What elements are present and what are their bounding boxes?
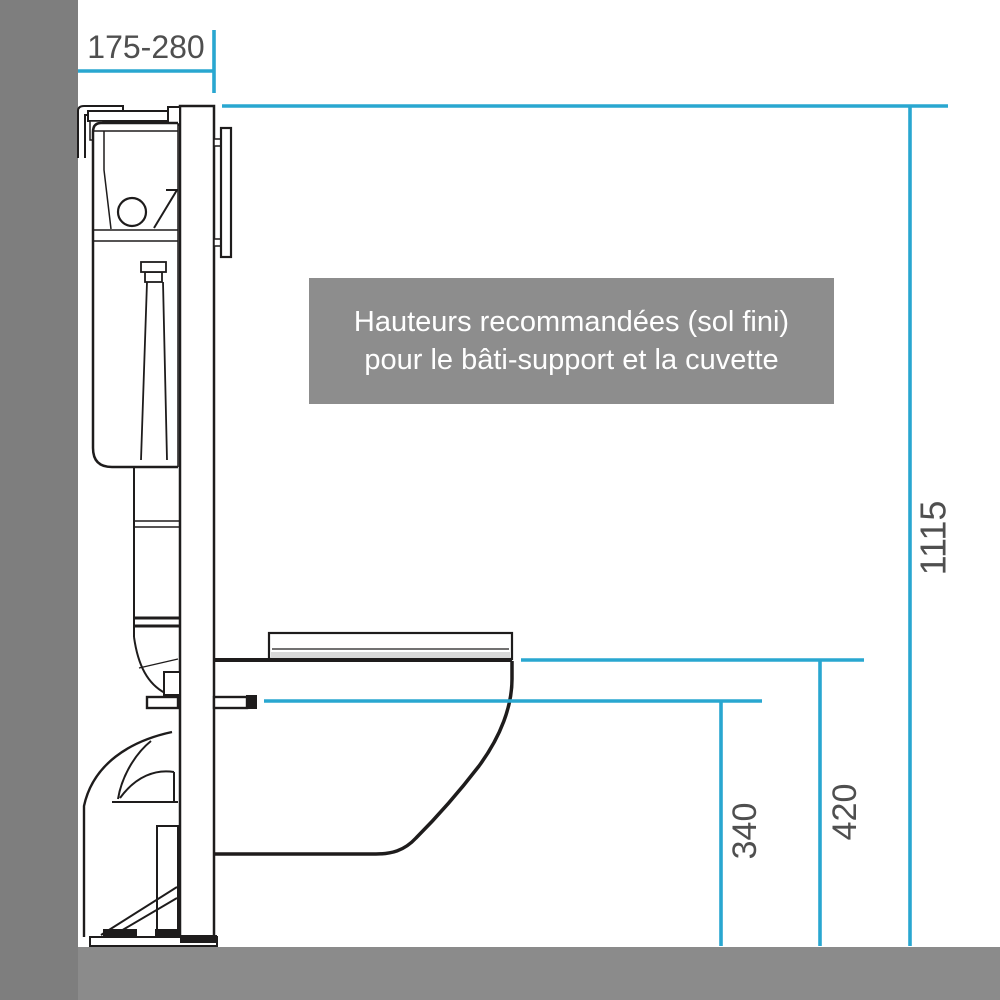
banner-line-1: Hauteurs recommandées (sol fini) (354, 303, 789, 341)
waste-socket-arc (120, 771, 174, 802)
banner-line-2: pour le bâti-support et la cuvette (364, 341, 778, 379)
plate-shadow (180, 935, 217, 943)
title-banner: Hauteurs recommandées (sol fini) pour le… (309, 278, 834, 404)
dim-total-height-label: 1115 (913, 501, 954, 576)
fixing-arm-right (214, 697, 247, 708)
waste-elbow-inner (118, 741, 151, 799)
pipe-joint-upper (134, 521, 180, 527)
bend-hatch (139, 659, 178, 668)
bowl-inlet-socket (164, 672, 180, 695)
foot-tube (157, 826, 178, 937)
float-ball (118, 198, 146, 226)
foot-pad-right (155, 929, 179, 937)
dim-bowl-height-label: 420 (826, 784, 864, 841)
fixing-arm-cap (246, 695, 257, 709)
flush-plate (221, 128, 231, 257)
dimension-labels: 175-280 1115 420 340 (87, 29, 953, 859)
technical-drawing: 175-280 1115 420 340 (0, 0, 1000, 1000)
foot-pad-left (103, 929, 137, 937)
overflow-cap (141, 262, 166, 272)
installation-diagram: 175-280 1115 420 340 Hauteurs recommandé… (0, 0, 1000, 1000)
dim-arm-height-label: 340 (726, 803, 764, 860)
fixing-arm-left (147, 697, 178, 708)
seat-shading (271, 652, 510, 658)
toilet-bowl-outline (214, 661, 512, 854)
frame-rail (180, 106, 214, 938)
pipe-joint-lower (134, 618, 180, 626)
overflow-cap-top (145, 272, 162, 282)
water-inlet-pipe (88, 111, 170, 121)
toilet-frame-drawing (78, 106, 512, 946)
dim-depth-label: 175-280 (87, 29, 204, 65)
